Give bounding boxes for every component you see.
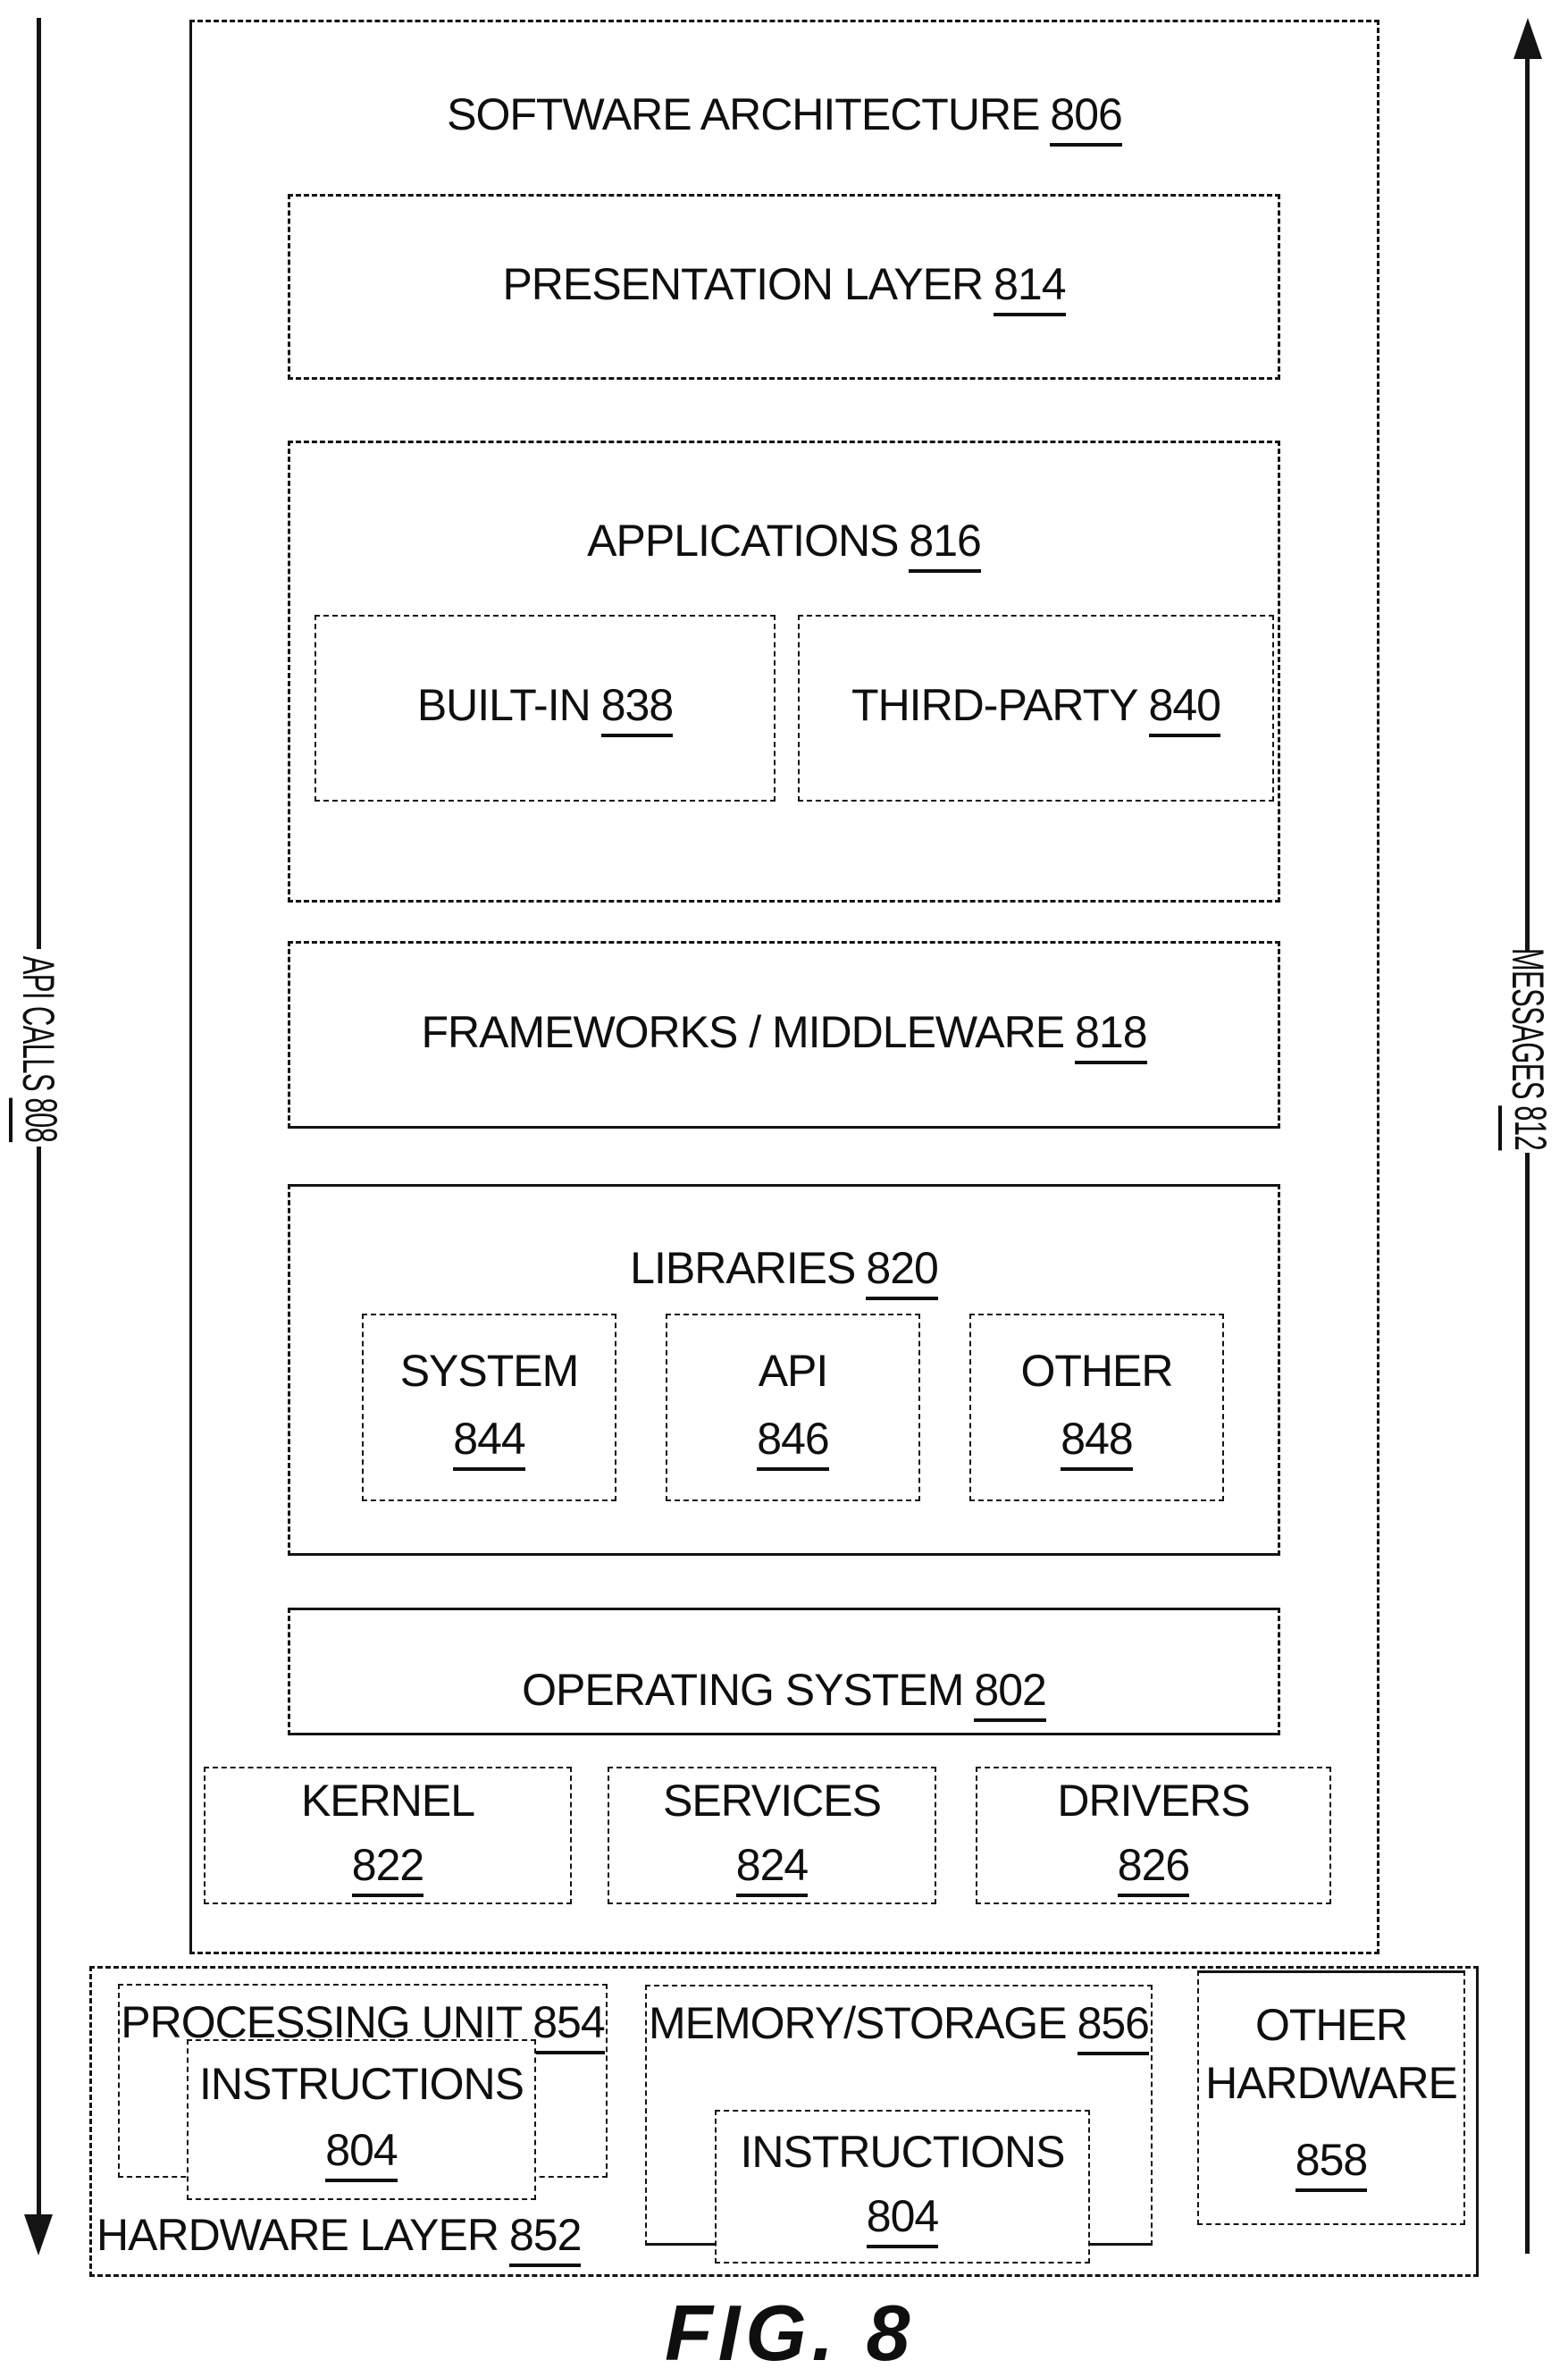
messages-line-lower — [1525, 1153, 1530, 2254]
third-party-label: THIRD-PARTY — [851, 679, 1138, 731]
built-in-label: BUILT-IN — [417, 679, 591, 731]
presentation-layer-ref: 814 — [994, 258, 1065, 316]
services-ref: 824 — [736, 1839, 808, 1897]
frameworks-middleware-ref: 818 — [1075, 1006, 1146, 1064]
api-calls-label-text: API CALLS — [13, 956, 64, 1091]
operating-system-ref: 802 — [974, 1664, 1045, 1722]
libraries-ref: 820 — [866, 1242, 937, 1300]
memory-storage-ref: 856 — [1077, 1997, 1149, 2055]
api-calls-label: API CALLS 808 — [10, 938, 67, 1160]
api-calls-line-lower — [37, 1147, 41, 2216]
operating-system-box: OPERATING SYSTEM 802 — [288, 1608, 1280, 1735]
hardware-layer-ref: 852 — [509, 2209, 581, 2267]
other-hardware-ref: 858 — [1295, 2134, 1367, 2192]
memory-storage-label: MEMORY/STORAGE — [649, 1997, 1067, 2049]
built-in-box: BUILT-IN 838 — [314, 615, 776, 802]
pu-instructions-label: INSTRUCTIONS — [199, 2058, 524, 2110]
kernel-ref: 822 — [352, 1839, 423, 1897]
drivers-ref: 826 — [1118, 1839, 1189, 1897]
hardware-layer-title: HARDWARE LAYER 852 — [96, 2209, 581, 2267]
applications-title: APPLICATIONS 816 — [290, 515, 1278, 573]
pu-instructions-ref: 804 — [325, 2124, 397, 2182]
patent-figure-page: API CALLS 808 MESSAGES 812 SOFTWARE ARCH… — [0, 0, 1568, 2377]
other-library-label: OTHER — [1021, 1345, 1173, 1397]
figure-caption: FIG. 8 — [665, 2288, 916, 2377]
presentation-layer-label: PRESENTATION LAYER — [502, 258, 983, 310]
services-box: SERVICES 824 — [608, 1767, 936, 1904]
software-architecture-label: SOFTWARE ARCHITECTURE — [447, 88, 1039, 140]
kernel-box: KERNEL 822 — [204, 1767, 572, 1904]
services-label: SERVICES — [663, 1775, 881, 1827]
other-hardware-box: OTHER HARDWARE 858 — [1197, 1970, 1465, 2225]
messages-line-upper — [1525, 57, 1530, 952]
api-calls-ref: 808 — [10, 1097, 68, 1142]
operating-system-title: OPERATING SYSTEM 802 — [290, 1664, 1278, 1722]
system-library-label: SYSTEM — [400, 1345, 579, 1397]
operating-system-label: OPERATING SYSTEM — [522, 1664, 963, 1716]
libraries-label: LIBRARIES — [630, 1242, 855, 1294]
kernel-label: KERNEL — [301, 1775, 474, 1827]
frameworks-middleware-box: FRAMEWORKS / MIDDLEWARE 818 — [288, 941, 1280, 1129]
api-library-ref: 846 — [757, 1413, 828, 1471]
frameworks-middleware-label: FRAMEWORKS / MIDDLEWARE — [421, 1006, 1064, 1058]
other-hardware-label-line2: HARDWARE — [1205, 2054, 1457, 2112]
built-in-ref: 838 — [601, 679, 673, 737]
drivers-box: DRIVERS 826 — [976, 1767, 1331, 1904]
other-library-box: OTHER 848 — [969, 1314, 1224, 1501]
applications-label: APPLICATIONS — [587, 515, 898, 567]
messages-label-text: MESSAGES — [1502, 948, 1554, 1099]
messages-ref: 812 — [1499, 1105, 1557, 1150]
presentation-layer-title: PRESENTATION LAYER 814 — [502, 258, 1065, 316]
pu-instructions-box: INSTRUCTIONS 804 — [187, 2039, 536, 2200]
drivers-label: DRIVERS — [1057, 1775, 1249, 1827]
built-in-title: BUILT-IN 838 — [417, 679, 673, 737]
api-calls-line-upper — [37, 18, 41, 949]
api-library-label: API — [759, 1345, 828, 1397]
software-architecture-ref: 806 — [1050, 88, 1121, 147]
system-library-ref: 844 — [453, 1413, 524, 1471]
api-library-box: API 846 — [666, 1314, 920, 1501]
hardware-layer-label: HARDWARE LAYER — [96, 2209, 499, 2261]
other-library-ref: 848 — [1061, 1413, 1132, 1471]
presentation-layer-box: PRESENTATION LAYER 814 — [288, 194, 1280, 380]
messages-arrowhead-up-icon — [1513, 18, 1542, 59]
processing-unit-ref: 854 — [532, 1996, 604, 2054]
memory-instructions-box: INSTRUCTIONS 804 — [715, 2110, 1090, 2264]
messages-label: MESSAGES 812 — [1499, 938, 1556, 1160]
third-party-box: THIRD-PARTY 840 — [798, 615, 1274, 802]
third-party-ref: 840 — [1149, 679, 1220, 737]
other-hardware-label-line1: OTHER — [1255, 1996, 1407, 2054]
libraries-title: LIBRARIES 820 — [290, 1242, 1278, 1300]
software-architecture-title: SOFTWARE ARCHITECTURE 806 — [192, 88, 1377, 147]
frameworks-middleware-title: FRAMEWORKS / MIDDLEWARE 818 — [421, 1006, 1146, 1064]
third-party-title: THIRD-PARTY 840 — [851, 679, 1220, 737]
api-calls-arrowhead-down-icon — [24, 2214, 53, 2255]
memory-instructions-label: INSTRUCTIONS — [741, 2126, 1065, 2178]
memory-storage-title: MEMORY/STORAGE 856 — [647, 1997, 1151, 2055]
system-library-box: SYSTEM 844 — [362, 1314, 616, 1501]
applications-ref: 816 — [909, 515, 980, 573]
memory-instructions-ref: 804 — [867, 2190, 938, 2248]
